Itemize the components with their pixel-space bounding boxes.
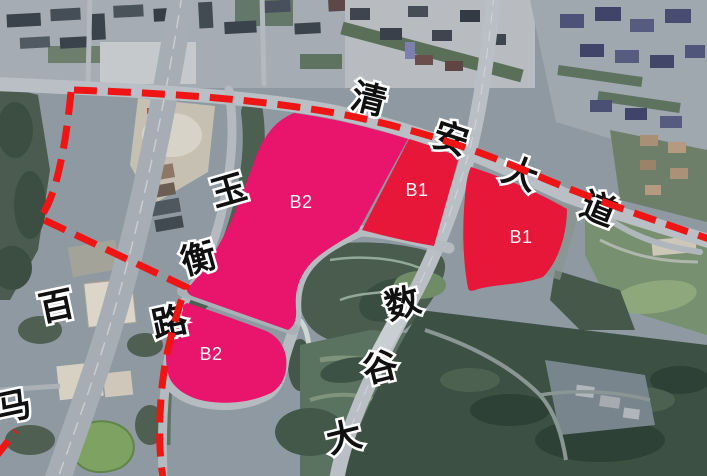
zone-label-b1-east: B1 — [509, 227, 532, 247]
zone-label-b2-south: B2 — [199, 344, 222, 364]
residential-north-mid — [342, 0, 535, 88]
zone-label-b2-north: B2 — [289, 192, 312, 212]
zone-label-b1-west: B1 — [405, 180, 428, 200]
satellite-planning-map: B2 B1 B1 B2 清 安 大 道 玉 衡 路 数 谷 大 百 马 — [0, 0, 707, 476]
map-canvas[interactable]: B2 B1 B1 B2 清 安 大 道 玉 衡 路 数 谷 大 百 马 — [0, 0, 707, 476]
road-minor-north-1 — [88, 0, 90, 84]
road-minor-north-2 — [262, 0, 264, 84]
